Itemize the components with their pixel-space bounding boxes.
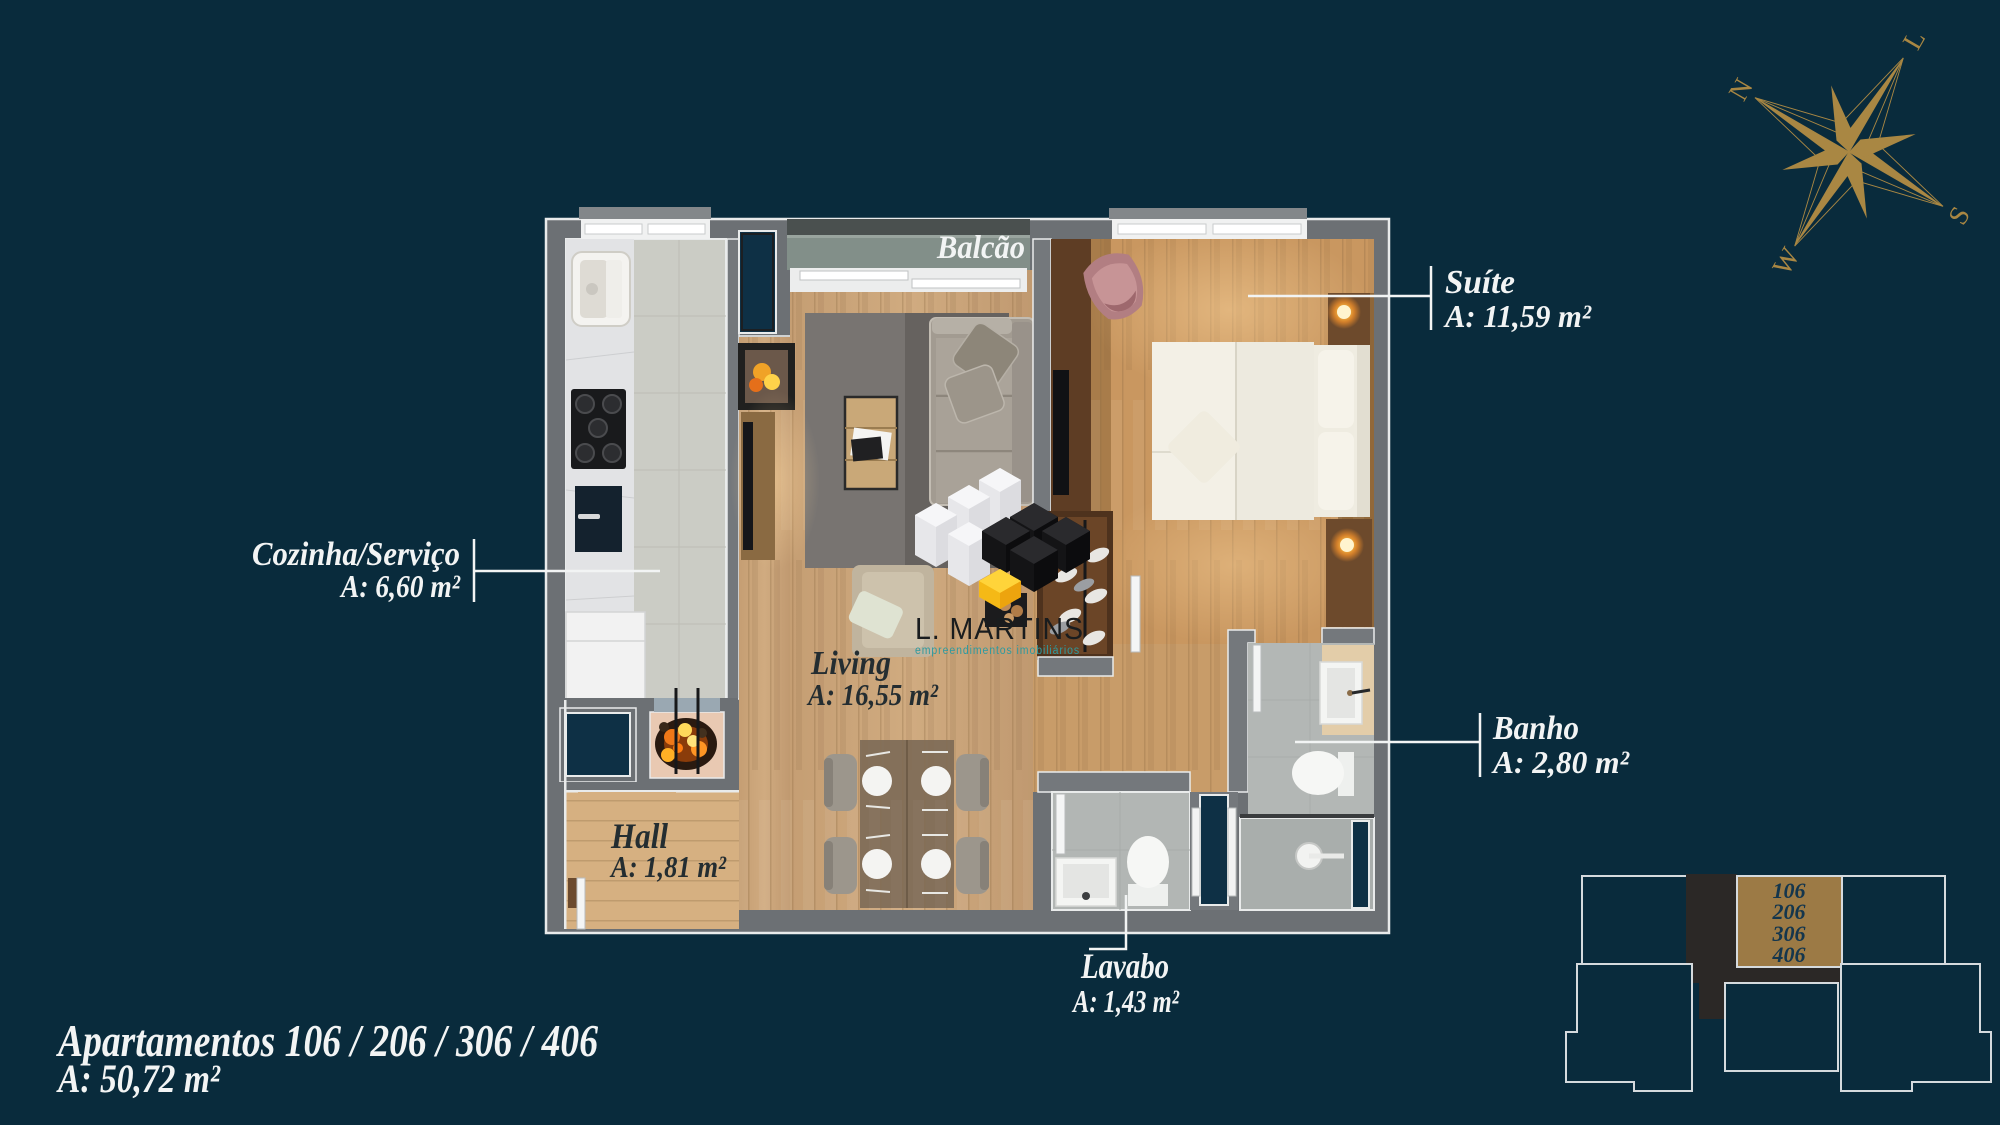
svg-text:Suíte: Suíte	[1445, 264, 1515, 301]
svg-text:A: 1,81 m²: A: 1,81 m²	[609, 849, 726, 884]
svg-text:A: 2,80 m²: A: 2,80 m²	[1491, 744, 1630, 780]
svg-text:A: 16,55 m²: A: 16,55 m²	[806, 677, 938, 712]
svg-text:A: 1,43 m²: A: 1,43 m²	[1071, 983, 1180, 1019]
svg-text:Balcão: Balcão	[936, 230, 1025, 266]
svg-text:A: 11,59 m²: A: 11,59 m²	[1443, 298, 1592, 334]
svg-text:Lavabo: Lavabo	[1080, 946, 1169, 986]
svg-text:L. MARTINS: L. MARTINS	[915, 611, 1084, 646]
svg-text:A: 50,72 m²: A: 50,72 m²	[55, 1056, 220, 1101]
svg-text:Banho: Banho	[1492, 710, 1579, 747]
svg-text:empreendimentos imobiliários: empreendimentos imobiliários	[915, 645, 1080, 657]
svg-text:406: 406	[1772, 942, 1806, 967]
svg-text:A: 6,60 m²: A: 6,60 m²	[339, 568, 461, 604]
